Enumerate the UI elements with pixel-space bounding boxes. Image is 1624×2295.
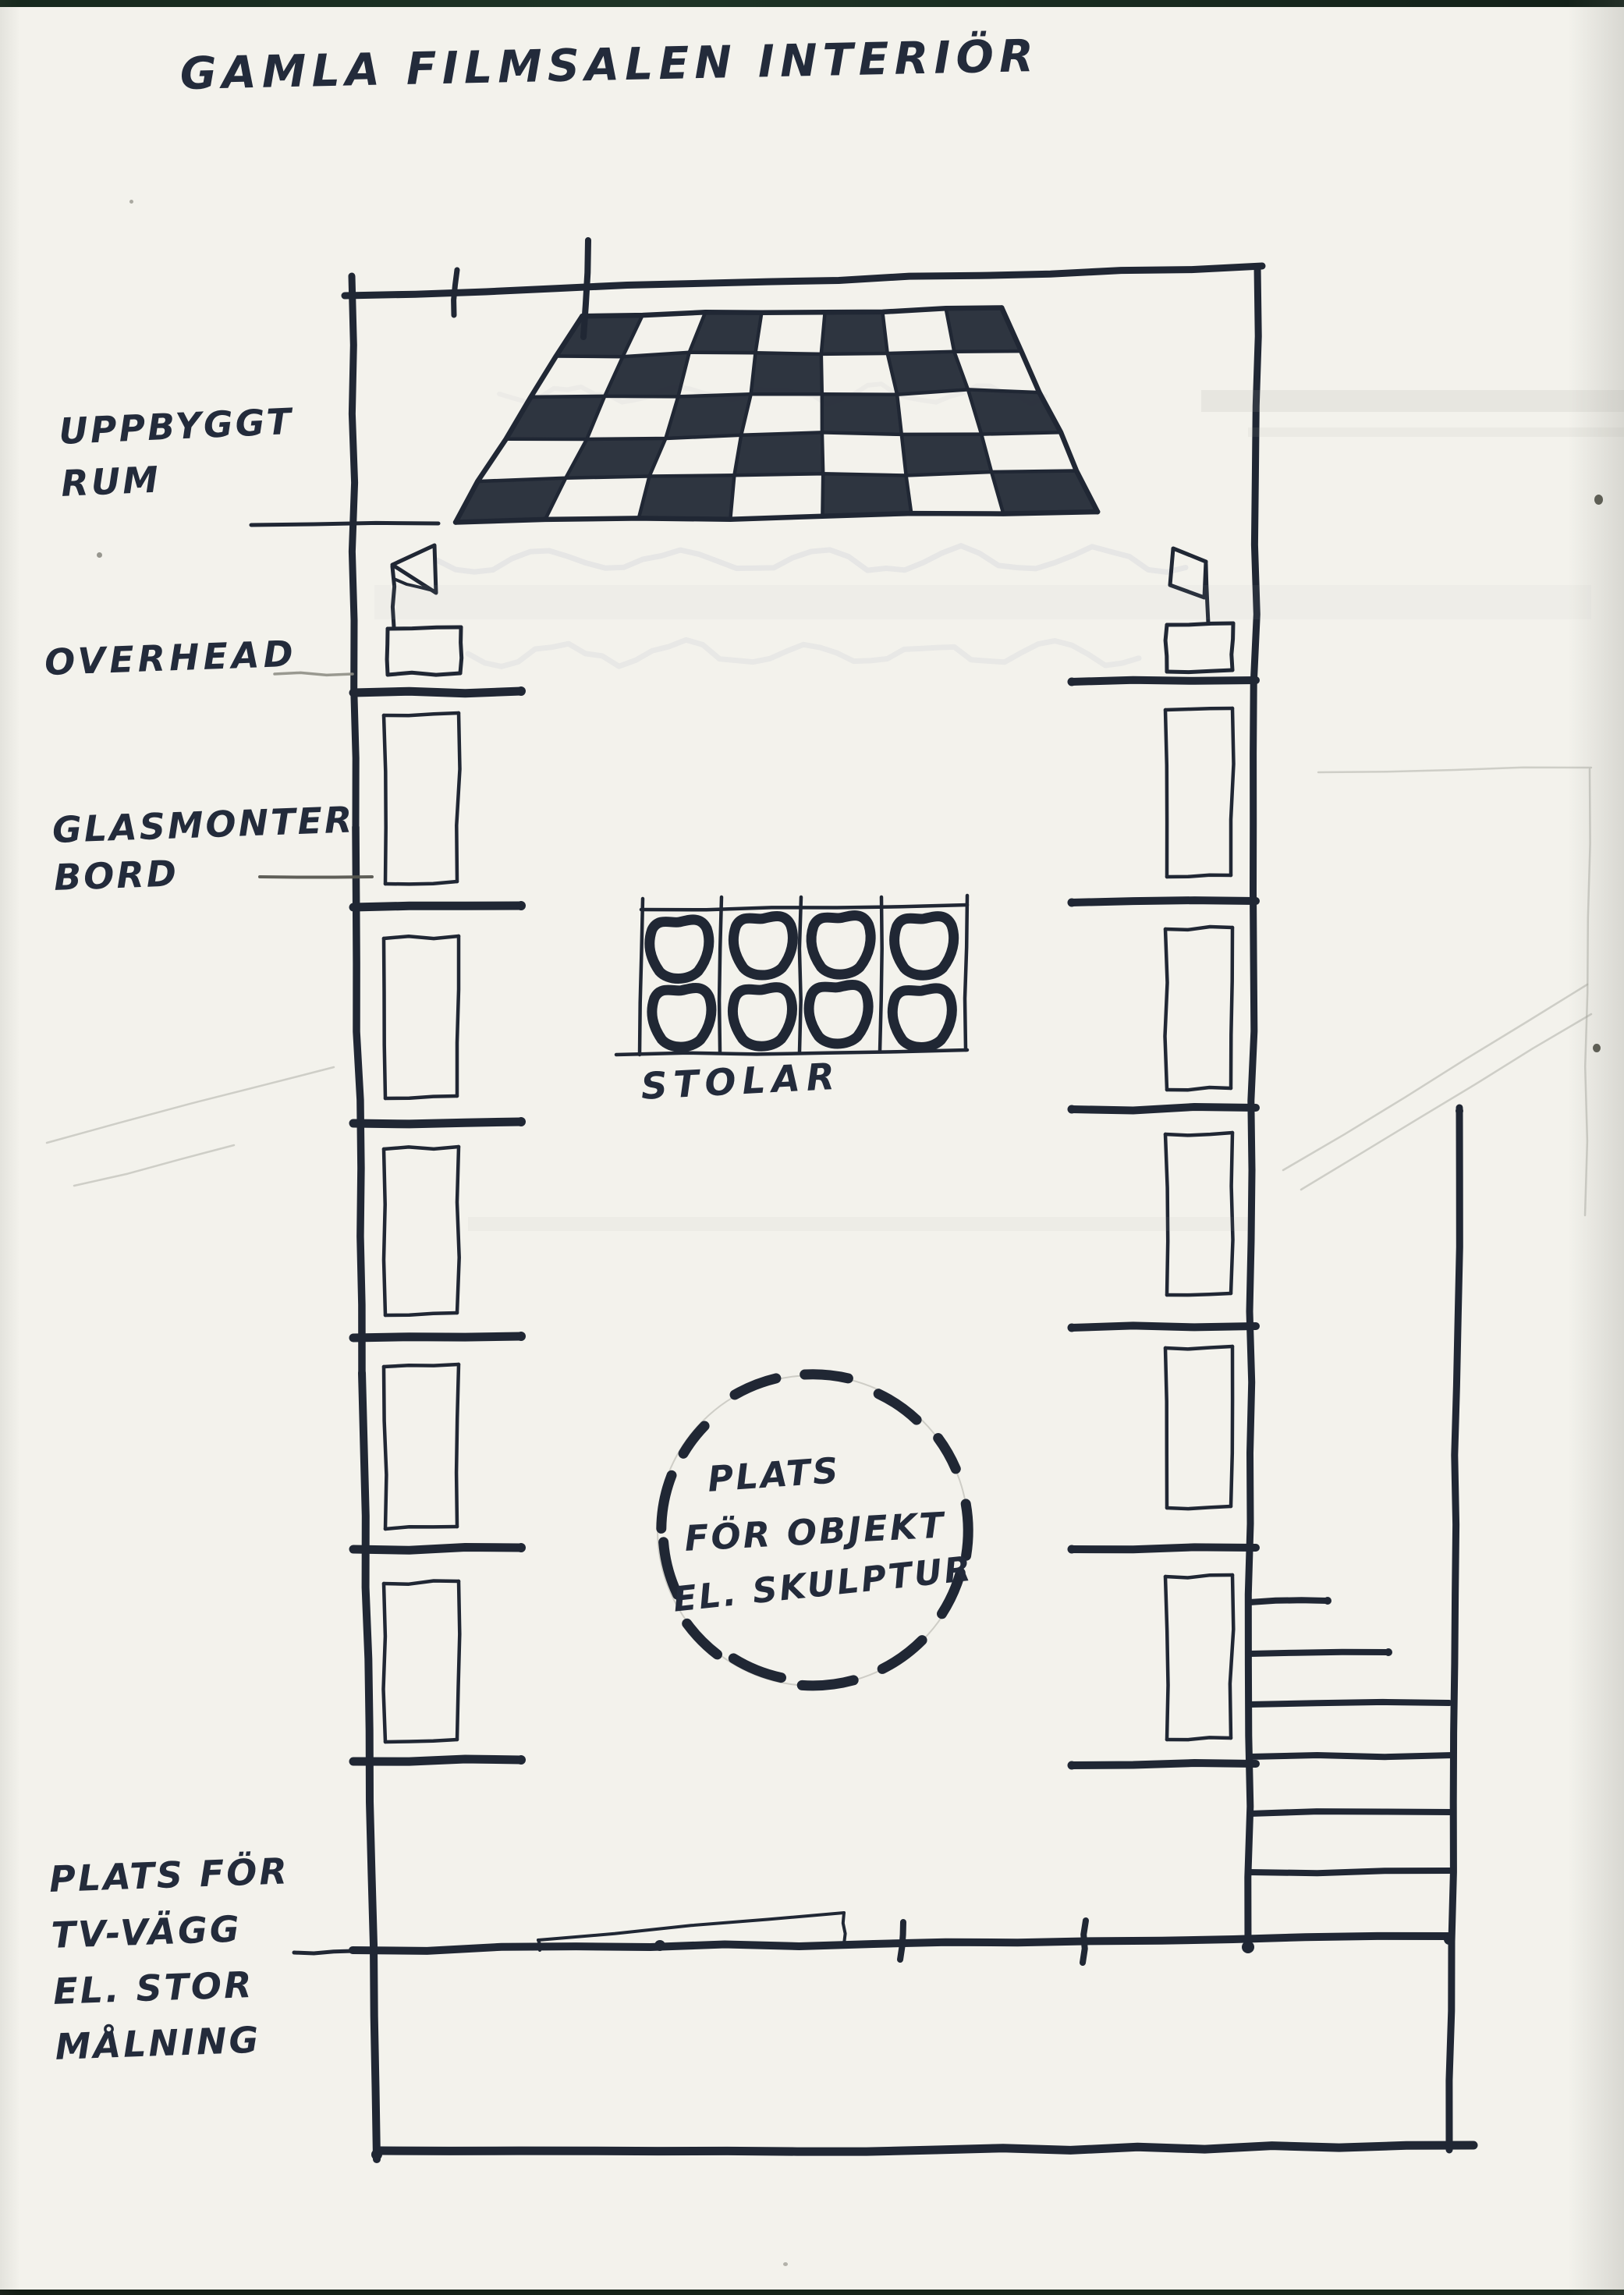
- checker-dark-cell: [456, 478, 566, 523]
- chair-icon: [650, 920, 709, 979]
- chair-icon: [732, 988, 792, 1047]
- scan-streak: [374, 585, 1591, 619]
- paper-shadow-left: [0, 0, 20, 2295]
- paper-shadow-right: [1568, 0, 1624, 2295]
- chair-icon: [895, 917, 954, 976]
- checker-dark-cell: [822, 474, 911, 516]
- checker-dark-cell: [902, 435, 991, 476]
- chair-icon: [652, 988, 711, 1047]
- left-display-cases: [384, 713, 460, 1742]
- glasmonter-case: [384, 1147, 459, 1315]
- label-overhead: OVERHEAD: [44, 628, 298, 689]
- label-stolar: STOLAR: [640, 1051, 842, 1114]
- checker-dark-cell: [506, 396, 605, 439]
- tv-wall-rect: [538, 1913, 846, 1951]
- checker-dark-cell: [821, 312, 888, 354]
- chair-icon: [811, 916, 871, 975]
- left-wall-partitions: [353, 686, 526, 1765]
- checker-dark-cell: [946, 308, 1022, 352]
- glasmonter-case: [1165, 1133, 1233, 1295]
- label-leader-lines: [251, 523, 438, 1953]
- checker-dark-cell: [888, 352, 968, 395]
- checker-dark-cell: [605, 353, 690, 397]
- chairs-grid: [616, 896, 967, 1055]
- label-line: RUM: [60, 448, 296, 510]
- checker-dark-cell: [751, 353, 822, 394]
- label-tv-vagg: PLATS FÖR TV-VÄGG EL. STOR MÅLNING: [48, 1843, 296, 2076]
- label-line: EL. STOR: [52, 1956, 294, 2020]
- label-line: PLATS FÖR: [48, 1843, 290, 1907]
- page-title: GAMLA FILMSALEN INTERIÖR: [179, 24, 1040, 107]
- glasmonter-case: [1165, 1575, 1233, 1740]
- label-line: MÅLNING: [55, 2011, 296, 2075]
- glasmonter-case: [1165, 708, 1234, 877]
- label-glasmonter-bord: GLASMONTER BORD: [51, 796, 356, 901]
- scan-edge-bottom: [0, 2290, 1624, 2295]
- chair-icon: [892, 988, 952, 1048]
- paper-speck: [97, 552, 102, 558]
- label-uppbyggt-rum: UPPBYGGT RUM: [58, 396, 296, 509]
- right-wall-partitions: [1068, 678, 1257, 1770]
- checker-dark-cell: [665, 394, 750, 438]
- checker-dark-cell: [690, 312, 762, 353]
- paper-speck: [129, 200, 133, 204]
- glasmonter-case: [384, 1364, 459, 1529]
- chair-icon: [733, 916, 792, 975]
- paper-speck: [783, 2262, 788, 2266]
- label-line: BORD: [53, 843, 356, 901]
- overhead-projector-icon: [387, 545, 462, 675]
- punch-hole: [1594, 495, 1603, 505]
- glasmonter-case: [1165, 1346, 1232, 1509]
- label-line: UPPBYGGT: [58, 396, 294, 458]
- chair-icon: [809, 984, 868, 1044]
- checker-dark-cell: [968, 389, 1061, 434]
- label-line: TV-VÄGG: [51, 1899, 293, 1963]
- room-walls: [345, 266, 1473, 2160]
- checker-dark-cell: [822, 394, 902, 435]
- checker-dark-cell: [734, 432, 823, 475]
- scan-streak: [1201, 390, 1624, 412]
- glasmonter-case: [384, 936, 459, 1098]
- stairs: [1250, 1597, 1452, 1873]
- checker-dark-cell: [556, 315, 643, 356]
- scan-streak: [468, 1217, 1248, 1231]
- right-display-cases: [1165, 708, 1234, 1740]
- scan-edge-top: [0, 0, 1624, 7]
- glasmonter-case: [1165, 927, 1233, 1090]
- checker-dark-cell: [639, 475, 735, 520]
- overhead-projector-icon: [1165, 548, 1233, 672]
- checker-dark-cell: [991, 471, 1097, 514]
- checker-dark-cell: [566, 438, 665, 478]
- checkerboard-floor-icon: [456, 308, 1097, 523]
- label-object-circle-line1: PLATS: [706, 1445, 842, 1505]
- glasmonter-case: [384, 713, 460, 884]
- punch-hole: [1593, 1044, 1601, 1052]
- glasmonter-case: [384, 1581, 460, 1743]
- scanned-sketch-page: GAMLA FILMSALEN INTERIÖR UPPBYGGT RUM OV…: [0, 0, 1624, 2295]
